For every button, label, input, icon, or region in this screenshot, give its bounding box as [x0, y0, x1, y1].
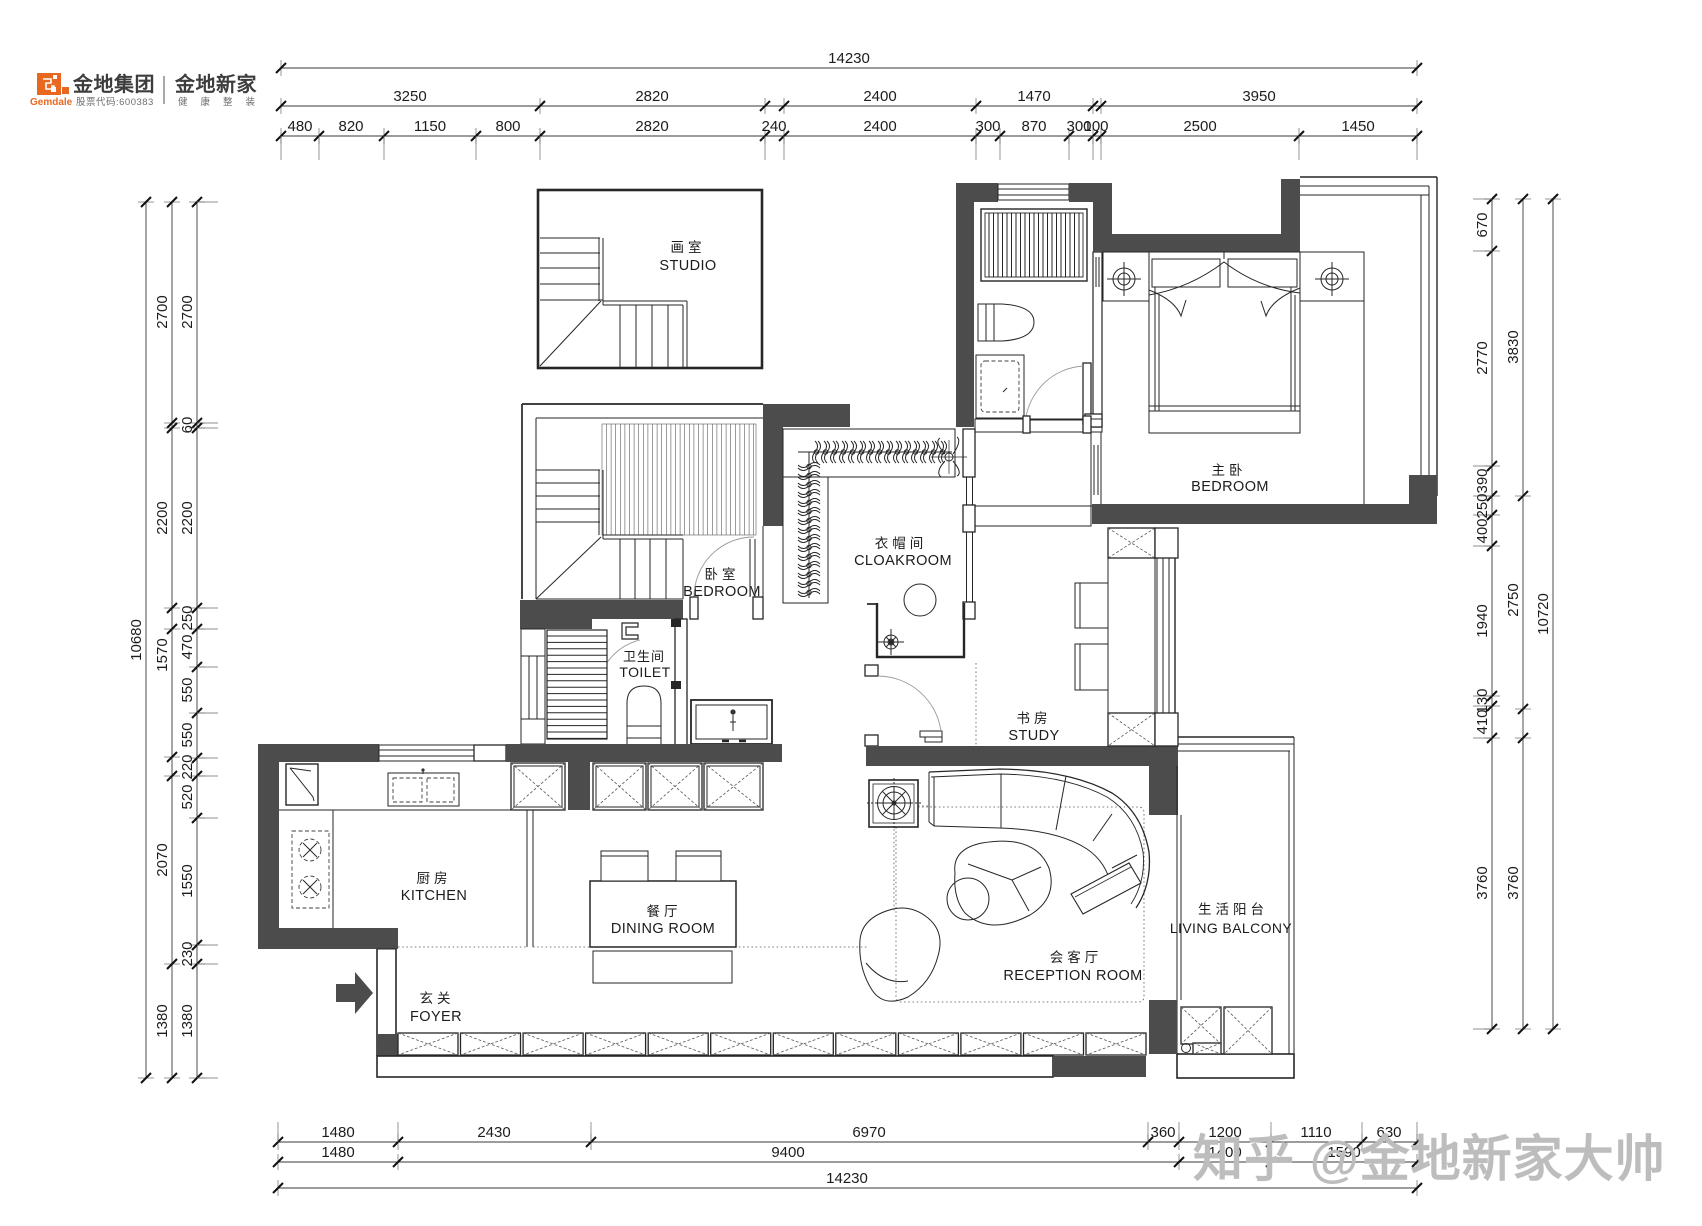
svg-text:LIVING BALCONY: LIVING BALCONY: [1170, 920, 1293, 936]
svg-text:1450: 1450: [1341, 118, 1374, 135]
svg-text:1380: 1380: [179, 1004, 196, 1037]
svg-text:STUDIO: STUDIO: [659, 258, 716, 274]
svg-text:1550: 1550: [179, 864, 196, 897]
svg-text:2770: 2770: [1474, 341, 1491, 374]
svg-text:2750: 2750: [1505, 583, 1522, 616]
svg-text:主卧: 主卧: [1212, 463, 1247, 478]
svg-text:2820: 2820: [635, 88, 668, 105]
svg-text:会客厅: 会客厅: [1050, 949, 1103, 965]
svg-text:餐厅: 餐厅: [647, 904, 682, 919]
svg-text:玄关: 玄关: [420, 990, 455, 1006]
svg-text:3760: 3760: [1505, 866, 1522, 899]
svg-text:400: 400: [1474, 518, 1491, 543]
svg-text:2700: 2700: [179, 295, 196, 328]
svg-text:Gemdale: Gemdale: [30, 97, 73, 108]
svg-text:100: 100: [1083, 118, 1108, 135]
svg-text:衣帽间: 衣帽间: [875, 536, 928, 551]
svg-text:金地集团: 金地集团: [72, 72, 155, 96]
svg-text:FOYER: FOYER: [410, 1009, 462, 1025]
svg-text:390: 390: [1474, 468, 1491, 493]
svg-text:金地新家: 金地新家: [174, 72, 257, 96]
svg-text:健康整装: 健康整装: [178, 96, 268, 108]
svg-text:知乎 @金地新家大帅: 知乎 @金地新家大帅: [1193, 1131, 1666, 1187]
svg-text:画室: 画室: [671, 239, 706, 255]
svg-text:360: 360: [1150, 1124, 1175, 1141]
svg-text:3760: 3760: [1474, 866, 1491, 899]
svg-text:10720: 10720: [1535, 593, 1552, 635]
svg-text:250: 250: [1474, 493, 1491, 518]
svg-text:2500: 2500: [1183, 118, 1216, 135]
svg-text:470: 470: [179, 634, 196, 659]
svg-text:550: 550: [179, 677, 196, 702]
svg-text:520: 520: [179, 784, 196, 809]
svg-text:2200: 2200: [179, 501, 196, 534]
svg-text:TOILET: TOILET: [619, 664, 670, 680]
svg-text:1470: 1470: [1017, 88, 1050, 105]
svg-text:卫生间: 卫生间: [623, 649, 665, 664]
svg-text:RECEPTION ROOM: RECEPTION ROOM: [1003, 968, 1142, 984]
svg-text:800: 800: [495, 118, 520, 135]
svg-text:STUDY: STUDY: [1008, 728, 1059, 744]
svg-text:2400: 2400: [863, 88, 896, 105]
svg-text:410: 410: [1474, 709, 1491, 734]
svg-text:1480: 1480: [321, 1144, 354, 1161]
svg-text:DINING ROOM: DINING ROOM: [611, 921, 715, 937]
svg-text:230: 230: [179, 941, 196, 966]
svg-text:1570: 1570: [154, 638, 171, 671]
svg-text:820: 820: [338, 118, 363, 135]
svg-text:KITCHEN: KITCHEN: [401, 888, 467, 904]
svg-text:250: 250: [179, 605, 196, 630]
svg-text:9400: 9400: [771, 1144, 804, 1161]
svg-text:厨房: 厨房: [417, 871, 452, 886]
svg-text:2400: 2400: [863, 118, 896, 135]
svg-text:卧室: 卧室: [705, 566, 740, 582]
svg-text:3950: 3950: [1242, 88, 1275, 105]
svg-text:股票代码:600383: 股票代码:600383: [76, 97, 154, 108]
svg-text:生活阳台: 生活阳台: [1198, 902, 1268, 917]
svg-text:1380: 1380: [154, 1004, 171, 1037]
svg-text:870: 870: [1021, 118, 1046, 135]
svg-text:300: 300: [975, 118, 1000, 135]
svg-text:2430: 2430: [477, 1124, 510, 1141]
svg-text:书房: 书房: [1017, 711, 1052, 726]
svg-text:3830: 3830: [1505, 330, 1522, 363]
svg-text:60: 60: [179, 417, 196, 434]
svg-text:220: 220: [179, 754, 196, 779]
svg-text:1150: 1150: [414, 118, 446, 135]
svg-text:3250: 3250: [393, 88, 426, 105]
svg-text:6970: 6970: [852, 1124, 885, 1141]
svg-text:550: 550: [179, 722, 196, 747]
svg-text:14230: 14230: [828, 50, 870, 67]
svg-text:2200: 2200: [154, 501, 171, 534]
svg-text:1940: 1940: [1474, 604, 1491, 637]
svg-text:2070: 2070: [154, 843, 171, 876]
svg-text:2820: 2820: [635, 118, 668, 135]
svg-text:670: 670: [1474, 212, 1491, 237]
svg-text:1480: 1480: [321, 1124, 354, 1141]
svg-text:10680: 10680: [128, 619, 145, 661]
svg-text:CLOAKROOM: CLOAKROOM: [854, 553, 952, 569]
svg-text:480: 480: [287, 118, 312, 135]
svg-text:BEDROOM: BEDROOM: [1191, 479, 1269, 495]
svg-text:2700: 2700: [154, 295, 171, 328]
svg-text:14230: 14230: [826, 1170, 868, 1187]
svg-text:240: 240: [761, 118, 786, 135]
